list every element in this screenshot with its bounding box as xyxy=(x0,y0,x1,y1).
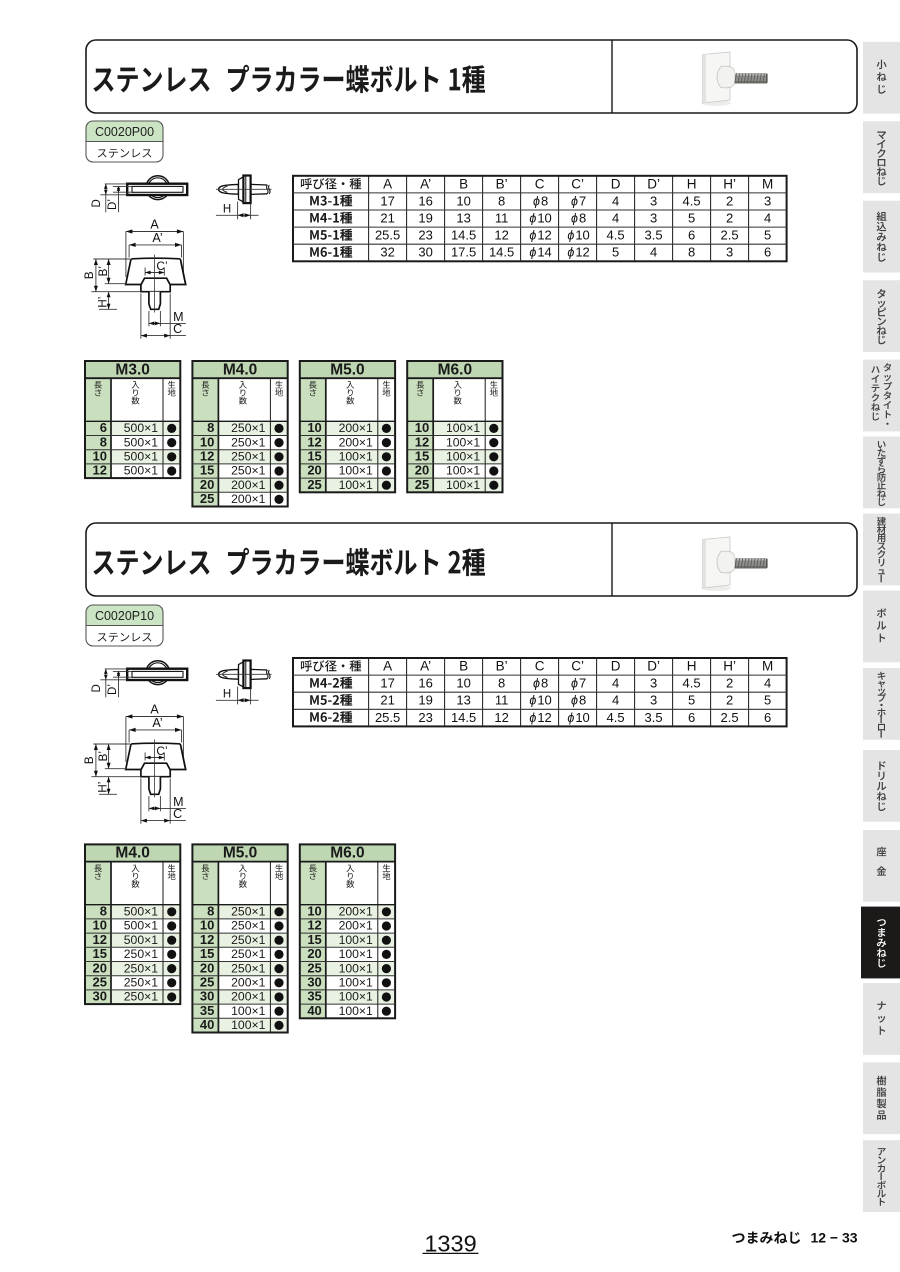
svg-text:500×1: 500×1 xyxy=(124,435,158,449)
svg-text:5: 5 xyxy=(612,245,619,260)
svg-text:2: 2 xyxy=(726,693,733,708)
svg-text:D: D xyxy=(611,659,621,674)
svg-text:4: 4 xyxy=(764,211,771,226)
svg-text:B: B xyxy=(82,756,96,764)
svg-text:ϕ10: ϕ10 xyxy=(567,228,589,243)
svg-text:3.5: 3.5 xyxy=(645,710,663,725)
svg-text:M3.0: M3.0 xyxy=(115,361,149,378)
svg-text:M5.0: M5.0 xyxy=(223,845,257,862)
svg-text:250×1: 250×1 xyxy=(124,976,158,990)
svg-text:200×1: 200×1 xyxy=(339,919,373,933)
svg-text:A: A xyxy=(383,177,392,192)
svg-text:17.5: 17.5 xyxy=(451,245,476,260)
svg-text:10: 10 xyxy=(456,676,470,691)
svg-text:100×1: 100×1 xyxy=(339,990,373,1004)
svg-text:ϕ10: ϕ10 xyxy=(529,211,551,226)
svg-text:4.5: 4.5 xyxy=(683,193,701,208)
svg-text:A’: A’ xyxy=(420,177,431,192)
svg-text:100×1: 100×1 xyxy=(446,478,480,492)
svg-text:12: 12 xyxy=(415,434,429,449)
svg-text:4: 4 xyxy=(612,693,619,708)
svg-text:35: 35 xyxy=(307,989,321,1004)
svg-text:20: 20 xyxy=(415,463,429,478)
svg-text:12: 12 xyxy=(494,228,508,243)
svg-text:250×1: 250×1 xyxy=(231,421,265,435)
svg-text:500×1: 500×1 xyxy=(124,919,158,933)
svg-text:15: 15 xyxy=(93,946,107,961)
svg-text:4: 4 xyxy=(612,211,619,226)
svg-text:30: 30 xyxy=(200,989,214,1004)
svg-text:M5.0: M5.0 xyxy=(330,361,364,378)
svg-text:6: 6 xyxy=(764,245,771,260)
svg-text:3: 3 xyxy=(650,193,657,208)
svg-text:15: 15 xyxy=(307,932,321,947)
svg-text:20: 20 xyxy=(307,463,321,478)
svg-text:5: 5 xyxy=(688,211,695,226)
svg-text:12: 12 xyxy=(200,449,214,464)
svg-text:D: D xyxy=(611,177,621,192)
svg-text:C: C xyxy=(535,177,545,192)
svg-text:250×1: 250×1 xyxy=(124,961,158,975)
svg-text:5: 5 xyxy=(764,693,771,708)
svg-text:500×1: 500×1 xyxy=(124,464,158,478)
svg-text:6: 6 xyxy=(764,710,771,725)
svg-text:C: C xyxy=(173,807,182,821)
svg-text:200×1: 200×1 xyxy=(231,492,265,506)
svg-text:5: 5 xyxy=(688,693,695,708)
svg-text:16: 16 xyxy=(418,676,432,691)
svg-text:12 − 33: 12 − 33 xyxy=(810,1229,857,1245)
svg-text:30: 30 xyxy=(418,245,432,260)
svg-text:14.5: 14.5 xyxy=(451,710,476,725)
svg-text:100×1: 100×1 xyxy=(339,1004,373,1018)
svg-text:23: 23 xyxy=(418,710,432,725)
svg-text:20: 20 xyxy=(93,960,107,975)
svg-text:4: 4 xyxy=(612,193,619,208)
svg-text:25.5: 25.5 xyxy=(375,710,400,725)
svg-text:M6.0: M6.0 xyxy=(330,845,364,862)
svg-text:ϕ8: ϕ8 xyxy=(571,211,586,226)
svg-text:35: 35 xyxy=(200,1003,214,1018)
svg-text:D’: D’ xyxy=(107,684,119,695)
svg-text:19: 19 xyxy=(418,211,432,226)
svg-text:20: 20 xyxy=(307,946,321,961)
svg-text:40: 40 xyxy=(307,1003,321,1018)
svg-text:A: A xyxy=(150,702,159,716)
svg-text:100×1: 100×1 xyxy=(446,421,480,435)
svg-text:4: 4 xyxy=(612,676,619,691)
svg-text:25: 25 xyxy=(200,975,214,990)
svg-text:6: 6 xyxy=(688,228,695,243)
svg-text:12: 12 xyxy=(200,932,214,947)
svg-text:C: C xyxy=(535,659,545,674)
svg-text:10: 10 xyxy=(307,420,321,435)
svg-text:H’: H’ xyxy=(723,659,736,674)
svg-text:12: 12 xyxy=(307,434,321,449)
svg-text:ϕ7: ϕ7 xyxy=(571,193,586,208)
svg-text:500×1: 500×1 xyxy=(124,421,158,435)
svg-text:A: A xyxy=(150,217,159,231)
svg-text:4.5: 4.5 xyxy=(607,228,625,243)
svg-text:H’: H’ xyxy=(95,782,109,793)
svg-text:250×1: 250×1 xyxy=(231,947,265,961)
svg-text:16: 16 xyxy=(418,193,432,208)
svg-text:C’: C’ xyxy=(571,659,584,674)
svg-text:10: 10 xyxy=(93,449,107,464)
svg-text:21: 21 xyxy=(380,211,394,226)
svg-text:ϕ7: ϕ7 xyxy=(571,676,586,691)
svg-text:M: M xyxy=(762,659,773,674)
svg-text:14.5: 14.5 xyxy=(451,228,476,243)
svg-text:ϕ10: ϕ10 xyxy=(529,693,551,708)
svg-text:M6.0: M6.0 xyxy=(438,361,472,378)
svg-text:B: B xyxy=(82,271,96,279)
svg-text:C’: C’ xyxy=(156,744,167,758)
svg-text:200×1: 200×1 xyxy=(231,990,265,1004)
svg-text:C0020P00: C0020P00 xyxy=(95,125,154,139)
svg-text:100×1: 100×1 xyxy=(231,1004,265,1018)
svg-text:B’: B’ xyxy=(496,177,508,192)
svg-text:D’: D’ xyxy=(647,177,660,192)
svg-text:25: 25 xyxy=(307,477,321,492)
svg-text:A’: A’ xyxy=(420,659,431,674)
svg-text:25.5: 25.5 xyxy=(375,228,400,243)
svg-text:8: 8 xyxy=(100,904,107,919)
svg-text:B’: B’ xyxy=(96,751,110,762)
svg-text:8: 8 xyxy=(100,434,107,449)
svg-text:ϕ12: ϕ12 xyxy=(529,228,551,243)
svg-text:ϕ14: ϕ14 xyxy=(529,245,551,260)
svg-text:8: 8 xyxy=(498,676,505,691)
svg-text:100×1: 100×1 xyxy=(339,478,373,492)
svg-text:10: 10 xyxy=(200,434,214,449)
svg-text:25: 25 xyxy=(415,477,429,492)
svg-text:250×1: 250×1 xyxy=(231,905,265,919)
svg-text:500×1: 500×1 xyxy=(124,905,158,919)
svg-text:13: 13 xyxy=(456,211,470,226)
svg-text:B: B xyxy=(459,659,468,674)
svg-text:8: 8 xyxy=(498,193,505,208)
svg-text:3: 3 xyxy=(650,211,657,226)
svg-text:ϕ10: ϕ10 xyxy=(567,710,589,725)
svg-text:200×1: 200×1 xyxy=(339,435,373,449)
svg-text:250×1: 250×1 xyxy=(124,990,158,1004)
svg-text:15: 15 xyxy=(307,449,321,464)
svg-text:100×1: 100×1 xyxy=(446,435,480,449)
svg-text:10: 10 xyxy=(93,918,107,933)
svg-text:3: 3 xyxy=(726,245,733,260)
svg-text:10: 10 xyxy=(456,193,470,208)
svg-text:H’: H’ xyxy=(723,177,736,192)
svg-text:100×1: 100×1 xyxy=(231,1018,265,1032)
svg-text:B’: B’ xyxy=(96,266,110,277)
svg-text:15: 15 xyxy=(200,463,214,478)
svg-text:ϕ8: ϕ8 xyxy=(533,676,548,691)
svg-text:200×1: 200×1 xyxy=(231,478,265,492)
svg-text:3: 3 xyxy=(650,693,657,708)
svg-text:C’: C’ xyxy=(571,177,584,192)
svg-text:100×1: 100×1 xyxy=(339,947,373,961)
svg-text:250×1: 250×1 xyxy=(231,464,265,478)
svg-text:ϕ8: ϕ8 xyxy=(533,193,548,208)
svg-text:10: 10 xyxy=(415,420,429,435)
svg-text:B: B xyxy=(459,177,468,192)
svg-text:ϕ8: ϕ8 xyxy=(571,693,586,708)
svg-text:M4.0: M4.0 xyxy=(115,845,149,862)
svg-text:ϕ12: ϕ12 xyxy=(567,245,589,260)
svg-text:32: 32 xyxy=(380,245,394,260)
svg-text:B’: B’ xyxy=(496,659,508,674)
svg-text:2.5: 2.5 xyxy=(721,228,739,243)
svg-text:200×1: 200×1 xyxy=(231,976,265,990)
svg-text:500×1: 500×1 xyxy=(124,450,158,464)
svg-text:8: 8 xyxy=(688,245,695,260)
svg-text:250×1: 250×1 xyxy=(231,435,265,449)
svg-text:20: 20 xyxy=(200,477,214,492)
svg-text:250×1: 250×1 xyxy=(231,933,265,947)
svg-text:15: 15 xyxy=(200,946,214,961)
svg-text:17: 17 xyxy=(380,193,394,208)
svg-text:3: 3 xyxy=(650,676,657,691)
svg-text:11: 11 xyxy=(495,211,509,226)
svg-text:A: A xyxy=(383,659,392,674)
svg-text:100×1: 100×1 xyxy=(339,976,373,990)
svg-text:H: H xyxy=(687,659,697,674)
svg-text:12: 12 xyxy=(307,918,321,933)
svg-text:4: 4 xyxy=(764,676,771,691)
svg-text:200×1: 200×1 xyxy=(339,421,373,435)
svg-text:8: 8 xyxy=(207,420,214,435)
svg-text:200×1: 200×1 xyxy=(339,905,373,919)
svg-text:2: 2 xyxy=(726,676,733,691)
svg-text:5: 5 xyxy=(764,228,771,243)
svg-text:40: 40 xyxy=(200,1017,214,1032)
svg-text:D’: D’ xyxy=(107,199,119,210)
svg-text:12: 12 xyxy=(93,932,107,947)
svg-text:C’: C’ xyxy=(156,259,167,273)
svg-text:11: 11 xyxy=(495,693,509,708)
svg-text:A’: A’ xyxy=(152,716,162,730)
svg-text:17: 17 xyxy=(380,676,394,691)
svg-text:6: 6 xyxy=(688,710,695,725)
svg-text:D: D xyxy=(91,684,103,692)
svg-text:250×1: 250×1 xyxy=(231,919,265,933)
svg-text:8: 8 xyxy=(207,904,214,919)
svg-text:2.5: 2.5 xyxy=(721,710,739,725)
svg-text:3.5: 3.5 xyxy=(645,228,663,243)
svg-text:1339: 1339 xyxy=(424,1230,476,1256)
svg-text:H: H xyxy=(223,689,231,701)
svg-text:250×1: 250×1 xyxy=(124,947,158,961)
svg-text:6: 6 xyxy=(100,420,107,435)
svg-text:100×1: 100×1 xyxy=(446,450,480,464)
svg-text:25: 25 xyxy=(93,975,107,990)
svg-text:C0020P10: C0020P10 xyxy=(95,609,154,623)
svg-text:12: 12 xyxy=(93,463,107,478)
svg-text:12: 12 xyxy=(494,710,508,725)
svg-text:25: 25 xyxy=(200,491,214,506)
svg-text:21: 21 xyxy=(380,693,394,708)
svg-text:100×1: 100×1 xyxy=(339,450,373,464)
svg-text:15: 15 xyxy=(415,449,429,464)
svg-text:100×1: 100×1 xyxy=(446,464,480,478)
svg-text:C: C xyxy=(173,322,182,336)
svg-text:250×1: 250×1 xyxy=(231,450,265,464)
svg-text:A’: A’ xyxy=(152,231,162,245)
svg-text:250×1: 250×1 xyxy=(231,961,265,975)
svg-text:100×1: 100×1 xyxy=(339,961,373,975)
svg-text:4.5: 4.5 xyxy=(683,676,701,691)
svg-text:20: 20 xyxy=(200,960,214,975)
svg-text:H: H xyxy=(687,177,697,192)
svg-text:H’: H’ xyxy=(95,297,109,308)
svg-text:25: 25 xyxy=(307,960,321,975)
svg-text:10: 10 xyxy=(307,904,321,919)
svg-text:M: M xyxy=(762,177,773,192)
svg-text:100×1: 100×1 xyxy=(339,933,373,947)
svg-text:4: 4 xyxy=(650,245,657,260)
svg-text:23: 23 xyxy=(418,228,432,243)
svg-text:4.5: 4.5 xyxy=(607,710,625,725)
svg-text:500×1: 500×1 xyxy=(124,933,158,947)
svg-text:13: 13 xyxy=(456,693,470,708)
svg-text:D: D xyxy=(91,199,103,207)
svg-text:14.5: 14.5 xyxy=(489,245,514,260)
svg-text:D’: D’ xyxy=(647,659,660,674)
svg-text:100×1: 100×1 xyxy=(339,464,373,478)
svg-text:2: 2 xyxy=(726,211,733,226)
svg-text:10: 10 xyxy=(200,918,214,933)
svg-text:30: 30 xyxy=(93,989,107,1004)
svg-text:19: 19 xyxy=(418,693,432,708)
svg-text:M4.0: M4.0 xyxy=(223,361,257,378)
svg-text:H: H xyxy=(223,204,231,216)
svg-text:2: 2 xyxy=(726,193,733,208)
svg-text:3: 3 xyxy=(764,193,771,208)
svg-text:ϕ12: ϕ12 xyxy=(529,710,551,725)
svg-text:30: 30 xyxy=(307,975,321,990)
